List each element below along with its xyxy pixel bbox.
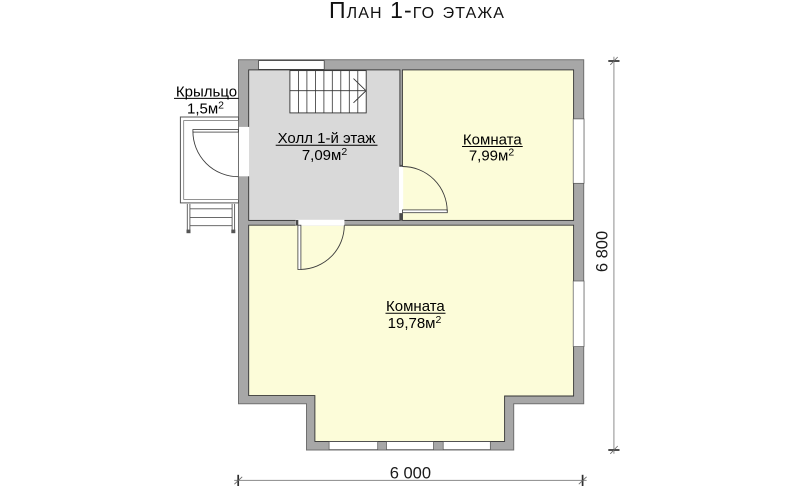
svg-text:www.zagorod.ru: www.zagorod.ru xyxy=(536,425,653,442)
svg-text:Крыльцо: Крыльцо xyxy=(176,83,237,100)
svg-text:www.zagorod.ru: www.zagorod.ru xyxy=(144,425,261,442)
svg-text:19,78м2: 19,78м2 xyxy=(388,314,442,332)
svg-text:Холл 1-й этаж: Холл 1-й этаж xyxy=(278,130,376,147)
svg-text:7,99м2: 7,99м2 xyxy=(469,147,515,165)
svg-text:План 1-го этажа: План 1-го этажа xyxy=(329,0,505,23)
svg-text:6 800: 6 800 xyxy=(594,231,612,272)
svg-text:Комната: Комната xyxy=(386,298,445,315)
svg-text:7,09м2: 7,09м2 xyxy=(302,146,348,164)
svg-text:6 000: 6 000 xyxy=(390,464,431,482)
